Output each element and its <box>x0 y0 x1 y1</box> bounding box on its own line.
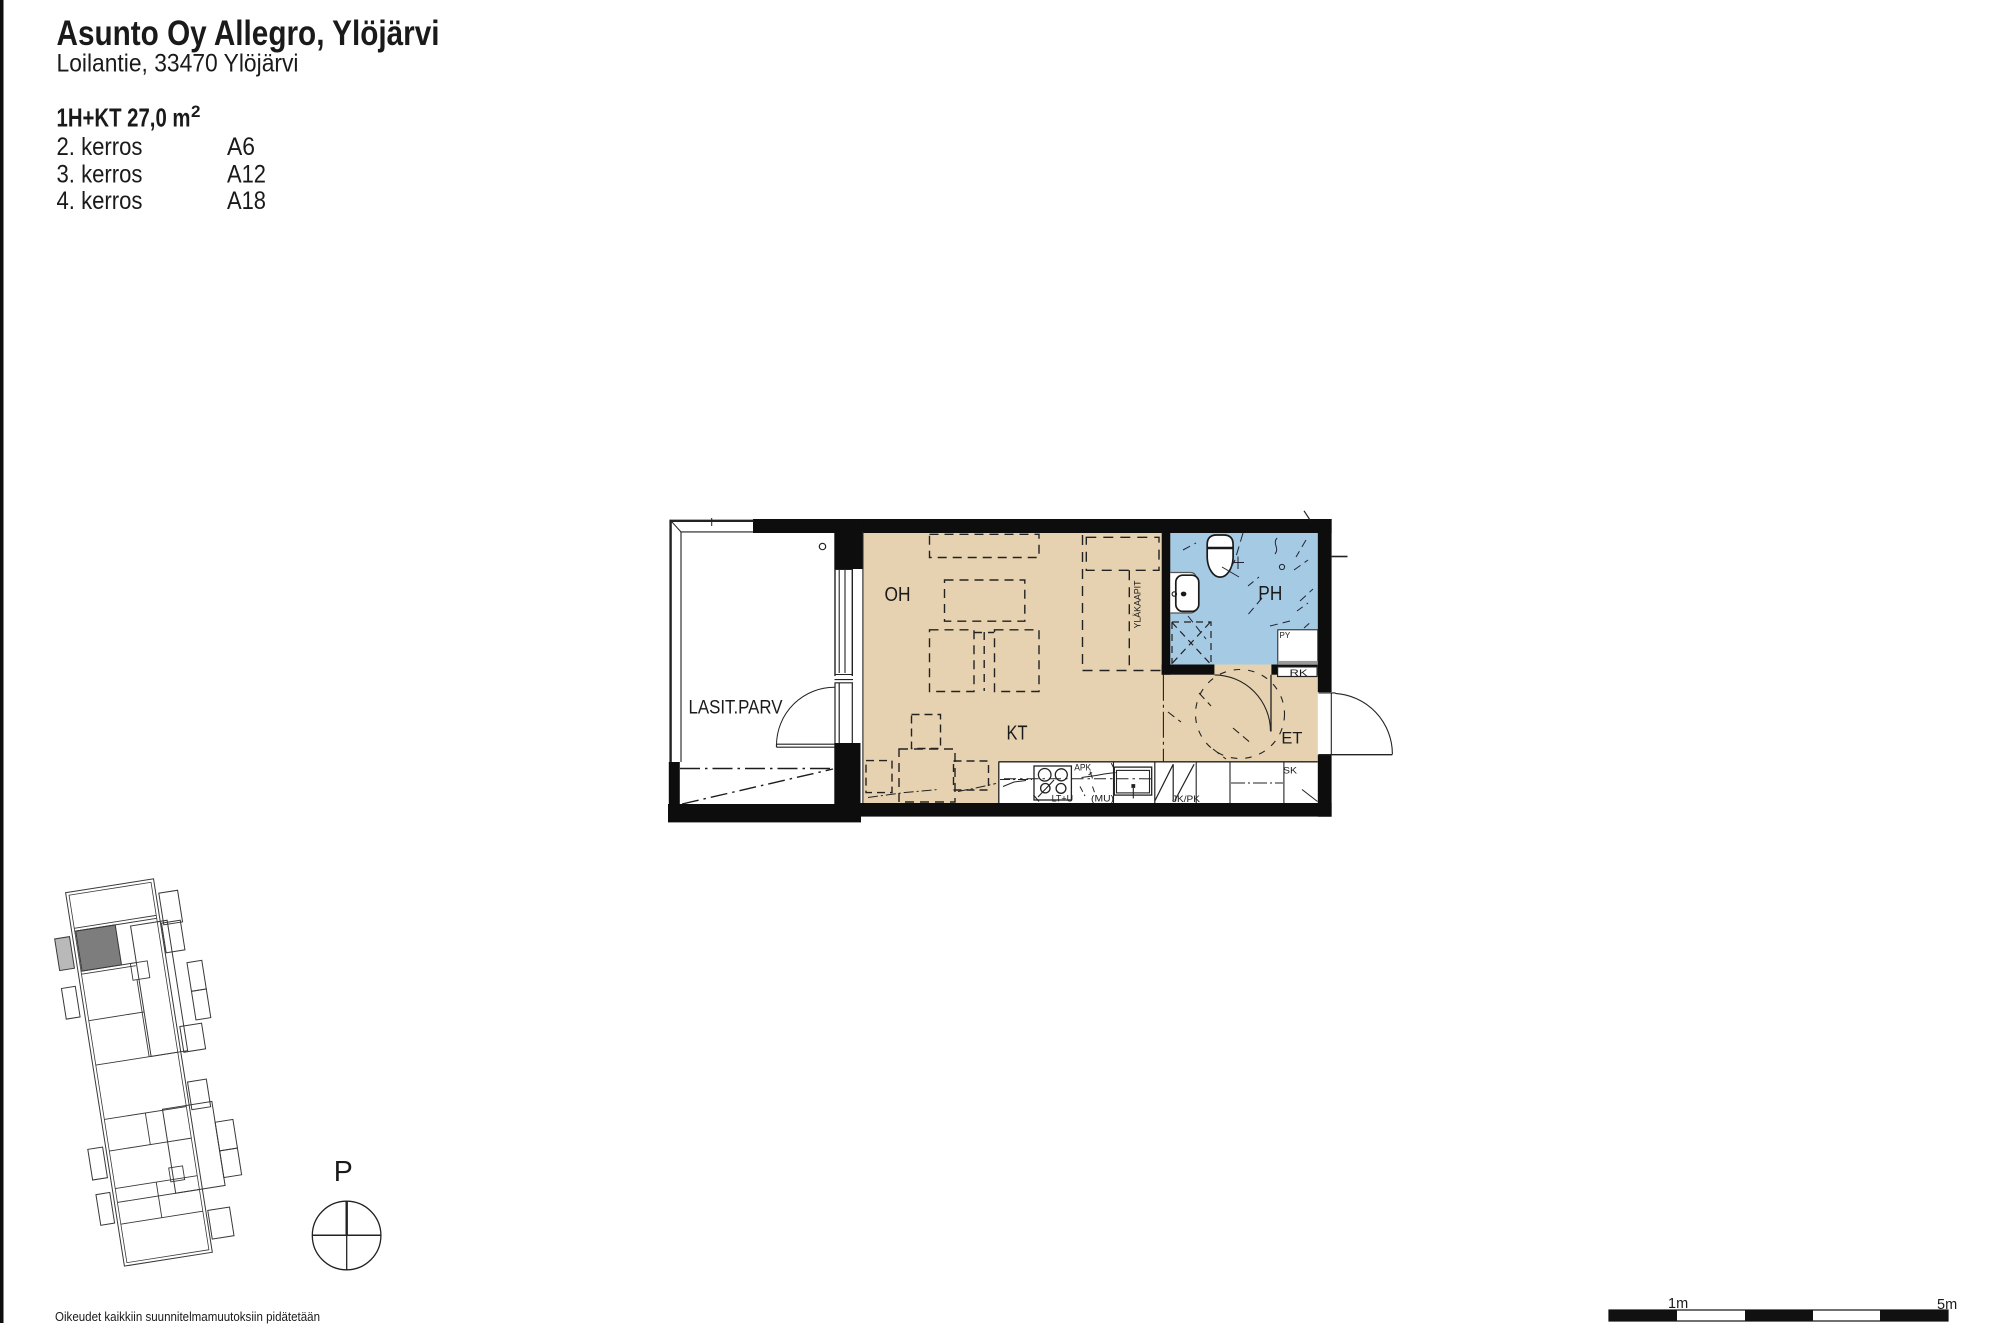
svg-text:SK: SK <box>1283 766 1297 776</box>
svg-text:LT+U: LT+U <box>1052 794 1074 804</box>
svg-text:2: 2 <box>191 102 200 121</box>
svg-text:3. kerros: 3. kerros <box>57 161 143 189</box>
svg-text:RK: RK <box>1290 668 1308 678</box>
svg-text:PY: PY <box>1280 631 1291 640</box>
svg-text:PH: PH <box>1258 583 1282 605</box>
svg-text:1H+KT 27,0 m: 1H+KT 27,0 m <box>57 103 191 133</box>
svg-text:A18: A18 <box>227 187 266 215</box>
svg-text:A6: A6 <box>227 133 255 161</box>
svg-text:APK: APK <box>1074 763 1091 773</box>
svg-text:A12: A12 <box>227 161 266 189</box>
svg-text:Asunto Oy Allegro, Ylöjärvi: Asunto Oy Allegro, Ylöjärvi <box>57 14 440 53</box>
svg-text:KT: KT <box>1007 723 1028 745</box>
svg-text:Oikeudet kaikkiin suunnitelmam: Oikeudet kaikkiin suunnitelmamuutoksiin … <box>55 1309 320 1324</box>
svg-text:Loilantie, 33470 Ylöjärvi: Loilantie, 33470 Ylöjärvi <box>57 50 299 78</box>
svg-text:YLÄKAAPIT: YLÄKAAPIT <box>1133 580 1144 628</box>
svg-text:2. kerros: 2. kerros <box>57 133 143 161</box>
svg-text:4. kerros: 4. kerros <box>57 187 143 215</box>
svg-text:(MU): (MU) <box>1091 794 1114 804</box>
svg-text:LASIT.PARV: LASIT.PARV <box>689 698 783 719</box>
svg-text:5m: 5m <box>1937 1297 1957 1313</box>
svg-text:1m: 1m <box>1668 1296 1688 1312</box>
svg-text:OH: OH <box>885 584 911 606</box>
svg-text:P: P <box>334 1156 353 1188</box>
svg-text:ET: ET <box>1281 728 1302 747</box>
